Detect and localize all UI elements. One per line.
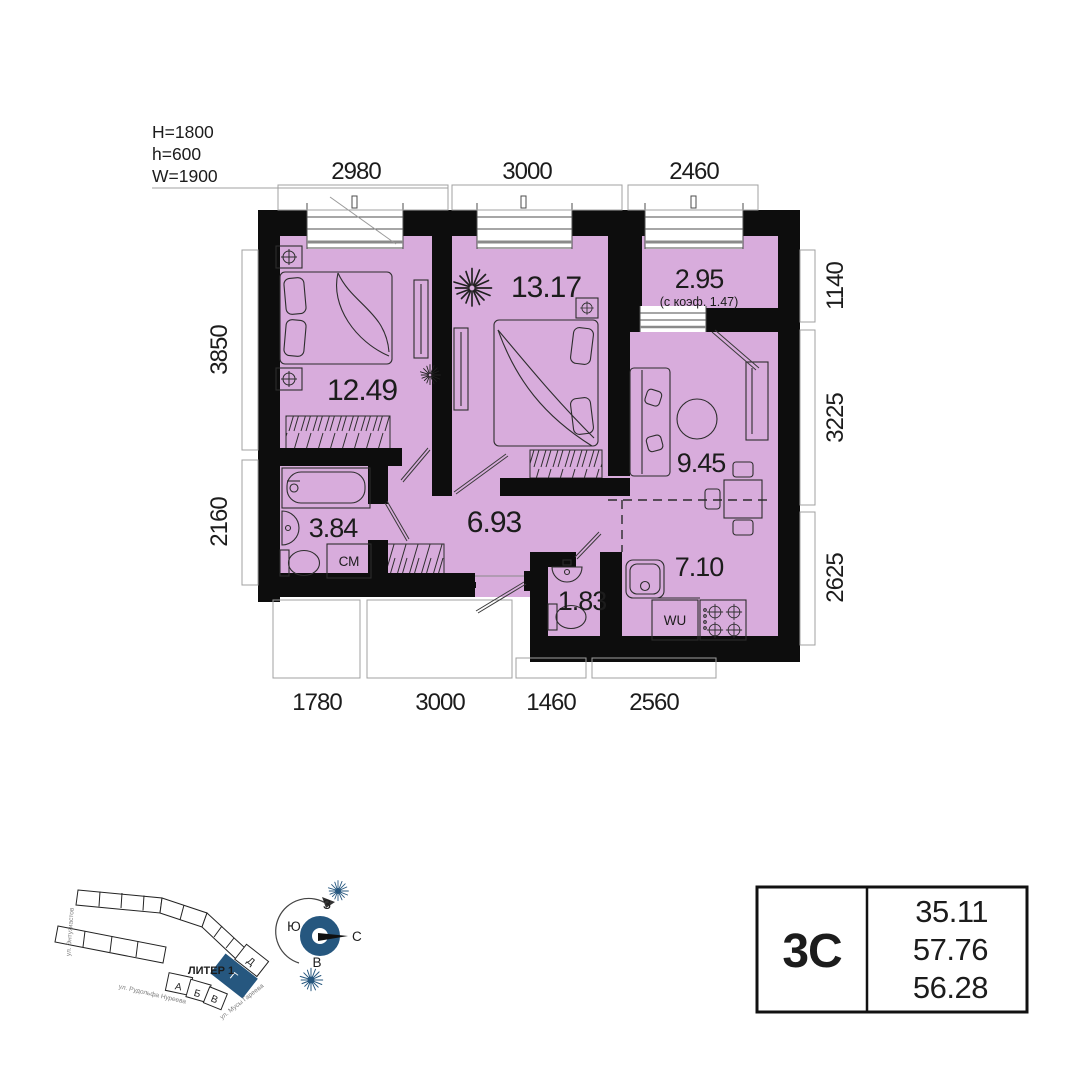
dim-right-2: 3225	[822, 393, 849, 443]
dim-bottom-2: 3000	[415, 689, 465, 716]
area-hall: 6.93	[467, 506, 522, 539]
wardrobe-bedroom2	[530, 450, 602, 478]
dim-bottom-3: 1460	[526, 689, 576, 716]
area-value-1: 35.11	[915, 894, 988, 929]
floorplan-page: H=1800 h=600 W=1900 2980 3000 2460 1780 …	[0, 0, 1080, 1080]
unit-type: 3С	[782, 925, 842, 978]
window-1	[307, 196, 403, 249]
floorplan-canvas: H=1800 h=600 W=1900 2980 3000 2460 1780 …	[0, 0, 1080, 1080]
area-bathroom: 3.84	[309, 513, 359, 543]
site-title: ЛИТЕР 1	[188, 965, 234, 977]
window-2	[477, 196, 572, 249]
wardrobe-bedroom1	[286, 416, 390, 450]
spec-line-3: W=1900	[152, 166, 218, 186]
dim-right-1: 1140	[822, 262, 849, 310]
dim-left-2: 2160	[206, 497, 233, 547]
dim-top-1: 2980	[331, 158, 381, 185]
area-kitchen: 7.10	[675, 552, 724, 582]
label-washing-machine: СМ	[339, 554, 360, 569]
area-balcony: 2.95	[675, 264, 724, 294]
area-bedroom2: 13.17	[511, 271, 581, 304]
compass-east: В	[312, 955, 321, 970]
area-value-3: 56.28	[913, 970, 988, 1005]
dim-top-3: 2460	[669, 158, 719, 185]
dim-bottom-4: 2560	[629, 689, 679, 716]
spec-line-1: H=1800	[152, 122, 214, 142]
wardrobe-hall	[382, 544, 444, 577]
info-table: 3С 35.11 57.76 56.28	[757, 887, 1027, 1012]
label-washer-unit: WU	[664, 613, 687, 628]
compass-south: Ю	[287, 919, 301, 934]
area-living: 9.45	[677, 448, 726, 478]
compass-west: З	[323, 897, 331, 912]
area-bedroom1: 12.49	[327, 374, 397, 407]
dim-left-1: 3850	[206, 325, 233, 375]
dim-top-2: 3000	[502, 158, 552, 185]
area-wc: 1.83	[558, 586, 607, 616]
area-balcony-note: (с коэф. 1.47)	[660, 295, 739, 309]
dim-bottom-1: 1780	[292, 689, 342, 716]
window-3	[645, 196, 743, 249]
balcony-window	[640, 306, 706, 332]
spec-line-2: h=600	[152, 144, 201, 164]
area-value-2: 57.76	[913, 932, 988, 967]
dim-right-3: 2625	[822, 553, 849, 603]
compass-north: С	[352, 929, 362, 944]
